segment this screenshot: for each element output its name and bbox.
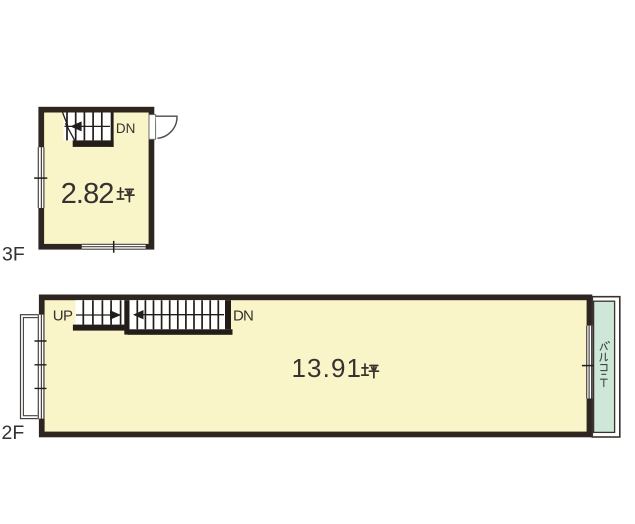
svg-text:DN: DN	[116, 121, 135, 136]
svg-text:13.91: 13.91	[292, 353, 363, 383]
svg-text:DN: DN	[233, 308, 253, 325]
svg-text:3F: 3F	[2, 243, 25, 265]
svg-text:2.82: 2.82	[61, 178, 114, 210]
svg-text:UP: UP	[53, 308, 73, 325]
svg-text:2F: 2F	[2, 422, 25, 444]
